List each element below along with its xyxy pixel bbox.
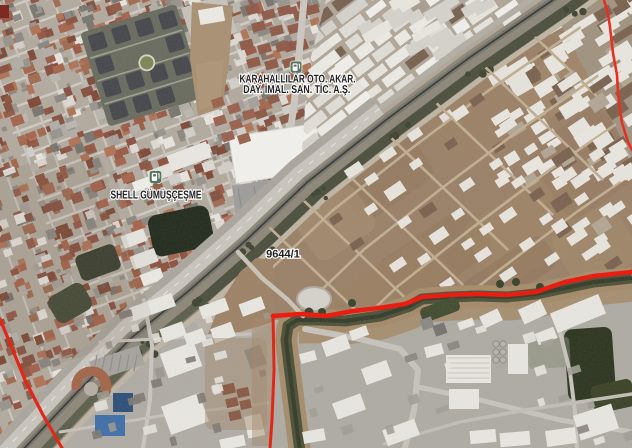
svg-text:DAY. İMAL. SAN. TİC. A.Ş.: DAY. İMAL. SAN. TİC. A.Ş.	[243, 83, 350, 96]
svg-text:SHELL GÜMÜŞÇEŞME: SHELL GÜMÜŞÇEŞME	[111, 189, 202, 202]
svg-text:9644/1: 9644/1	[266, 249, 300, 261]
